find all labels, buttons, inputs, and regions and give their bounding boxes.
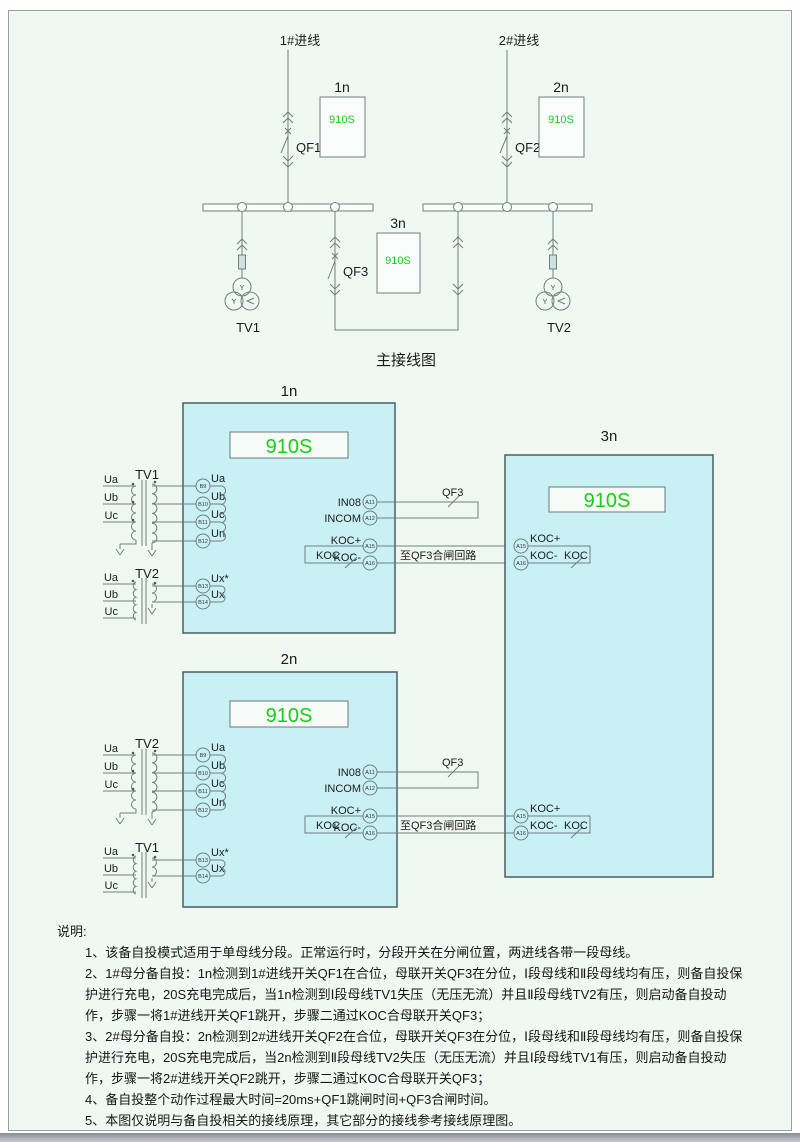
terminal-id: A16: [516, 831, 526, 837]
device-2n-model: 910S: [548, 114, 574, 126]
busbar-node: [331, 203, 340, 212]
terminal-id: B13: [198, 858, 208, 864]
note-item: 4、备自投整个动作过程最大时间=20ms+QF1跳闸时间+QF3合闸时间。: [85, 1089, 751, 1110]
terminal-label: Ux: [211, 863, 225, 875]
polarity-dot: [154, 582, 157, 585]
phase-a-label: Ua: [104, 743, 119, 755]
incom-label: INCOM: [324, 783, 361, 795]
device-3n-detail: 3n 910S A15 A16 KOC+ KOC- KOC A15 A16 KO…: [505, 428, 713, 877]
koc-contact-label: KOC: [564, 820, 588, 832]
breaker-blade-icon: [281, 136, 288, 153]
breaker-qf1-label: QF1: [296, 140, 321, 155]
terminal-id: A15: [516, 814, 526, 820]
terminal-id: B10: [198, 502, 208, 508]
tv-title: TV2: [135, 566, 159, 581]
phase-b-label: Ub: [104, 863, 118, 875]
terminal-label: Uc: [211, 509, 225, 521]
in08-label: IN08: [338, 767, 361, 779]
phase-a-label: Ua: [104, 846, 119, 858]
device-3n-model: 910S: [385, 255, 411, 267]
primary-winding-coil: [132, 486, 137, 540]
device-2n-model-large: 910S: [266, 705, 313, 727]
ground-icon: [116, 813, 124, 824]
wye-symbol: Y: [240, 285, 245, 292]
device-1n-model: 910S: [329, 114, 355, 126]
terminal-id: B9: [200, 484, 207, 490]
terminal-id: A15: [365, 544, 375, 550]
polarity-dot: [154, 750, 157, 753]
to-qf3-closing-circuit-label: 至QF3合闸回路: [400, 548, 476, 562]
polarity-dot: [132, 752, 135, 755]
breaker-blade-icon: [500, 136, 507, 153]
interconnect-1n-3n: 至QF3合闸回路: [377, 546, 514, 563]
primary-winding-coil: [132, 755, 137, 809]
vt-winding-circle: [552, 292, 570, 310]
polarity-dot: [132, 580, 135, 583]
koc-plus-label: KOC+: [530, 803, 560, 815]
terminal-label: Ub: [211, 760, 225, 772]
busbar-node: [549, 203, 558, 212]
polarity-dot: [132, 854, 135, 857]
fuse-icon: [239, 255, 246, 269]
transformer-core: [142, 480, 146, 546]
terminal-id: B14: [198, 600, 208, 606]
terminal-id: A16: [365, 831, 375, 837]
tv-title: TV2: [135, 736, 159, 751]
koc-contact-label: KOC: [316, 820, 340, 832]
phase-c-label: Uc: [105, 779, 119, 791]
ground-icon: [116, 544, 124, 555]
koc-contact-label: KOC: [316, 550, 340, 562]
device-1n-detail: 1n 910S TV1 Ua Ub Uc B9 B10: [103, 383, 478, 633]
screenshot-root: { "colors": { "accent_green": "#17cd17",…: [0, 0, 800, 1142]
terminal-id: B9: [200, 753, 207, 759]
transformer-core: [142, 578, 146, 624]
feeder-2: 2#进线 QF2 2n 910S: [499, 33, 584, 203]
ground-icon: [148, 543, 156, 556]
secondary-winding-coil: [152, 753, 157, 812]
qf3-contact-label: QF3: [442, 757, 463, 769]
open-delta-symbol: [247, 298, 254, 304]
terminal-label: Ux: [211, 589, 225, 601]
terminal-id: A16: [365, 561, 375, 567]
device-1n-label: 1n: [334, 79, 350, 95]
wye-symbol: Y: [551, 285, 556, 292]
terminal-label: Ux*: [211, 573, 229, 585]
bustie-qf3: QF3 3n 910S: [328, 211, 463, 330]
busbar-2: [423, 203, 592, 212]
transformer-core: [142, 749, 146, 815]
koc-plus-label: KOC+: [530, 533, 560, 545]
terminal-label: Ua: [211, 742, 226, 754]
polarity-dot: [132, 483, 135, 486]
device-3n-label: 3n: [390, 215, 406, 231]
secondary-winding-coil: [152, 484, 157, 543]
open-delta-symbol: [558, 298, 565, 304]
vt-winding-circle: [241, 292, 259, 310]
device-2n-detail: 2n 910S TV2 Ua Ub Uc B9 B10: [103, 651, 478, 907]
koc-plus-label: KOC+: [331, 805, 361, 817]
polarity-dot: [154, 856, 157, 859]
device-1n-box: [320, 97, 365, 157]
terminal-id: A15: [516, 544, 526, 550]
polarity-dot: [154, 481, 157, 484]
qf3-contact-label: QF3: [442, 487, 463, 499]
terminal-label: Un: [211, 528, 225, 540]
note-item: 1、该备自投模式适用于单母线分段。正常运行时，分段开关在分闸位置，两进线各带一段…: [85, 942, 751, 963]
terminal-id: B10: [198, 771, 208, 777]
phase-c-label: Uc: [105, 510, 119, 522]
terminal-id: A15: [365, 814, 375, 820]
main-diagram-caption: 主接线图: [376, 352, 436, 369]
incoming-line-1-label: 1#进线: [280, 33, 320, 48]
phase-c-label: Uc: [105, 880, 119, 892]
terminal-label: Ub: [211, 491, 225, 503]
terminal-id: B14: [198, 874, 208, 880]
transformer-core: [142, 852, 146, 898]
device-3n-model-large: 910S: [584, 490, 631, 512]
secondary-winding-coil: [152, 858, 157, 876]
busbar-1: [203, 203, 373, 212]
bottom-edge-bar: [0, 1133, 800, 1142]
incoming-line-2-label: 2#进线: [499, 33, 539, 48]
busbar-node: [284, 203, 293, 212]
tv-title: TV1: [135, 467, 159, 482]
fuse-icon: [550, 255, 557, 269]
note-item: 3、2#母分备自投：2n检测到2#进线开关QF2在合位，母联开关QF3在分位，Ⅰ…: [85, 1026, 751, 1089]
terminal-label: Uc: [211, 778, 225, 790]
wye-symbol: Y: [232, 299, 237, 306]
phase-b-label: Ub: [104, 589, 118, 601]
secondary-winding-coil: [152, 584, 157, 602]
koc-minus-label: KOC-: [530, 820, 558, 832]
busbar-node: [238, 203, 247, 212]
terminal-id: A16: [516, 561, 526, 567]
note-item: 2、1#母分备自投：1n检测到1#进线开关QF1在合位，母联开关QF3在分位，Ⅰ…: [85, 963, 751, 1026]
koc-plus-label: KOC+: [331, 535, 361, 547]
terminal-id: B11: [198, 520, 207, 526]
polarity-dot: [132, 770, 135, 773]
terminal-label: Ua: [211, 473, 226, 485]
phase-b-label: Ub: [104, 761, 118, 773]
terminal-id: A12: [365, 516, 375, 522]
note-item: 5、本图仅说明与备自投相关的接线原理，其它部分的接线参考接线原理图。: [85, 1110, 751, 1131]
terminal-label: Ux*: [211, 847, 229, 859]
phase-a-label: Ua: [104, 572, 119, 584]
device-2n-label: 2n: [553, 79, 569, 95]
busbar-node: [454, 203, 463, 212]
tv1-label: TV1: [236, 320, 260, 335]
tv1-branch: Y Y TV1: [225, 211, 260, 335]
ground-icon: [148, 812, 156, 825]
device-3n-title: 3n: [601, 428, 618, 445]
polarity-dot: [132, 501, 135, 504]
in08-label: IN08: [338, 497, 361, 509]
koc-minus-label: KOC-: [530, 550, 558, 562]
notes-section: 说明: 1、该备自投模式适用于单母线分段。正常运行时，分段开关在分闸位置，两进线…: [57, 921, 751, 1131]
wire: [120, 540, 136, 544]
notes-heading: 说明:: [57, 921, 751, 942]
terminal-id: B13: [198, 584, 208, 590]
terminal-label: Un: [211, 797, 225, 809]
busbar-node: [503, 203, 512, 212]
breaker-blade-icon: [328, 261, 335, 279]
ground-icon: [148, 604, 156, 614]
to-qf3-closing-circuit-label: 至QF3合闸回路: [400, 818, 476, 832]
wye-symbol: Y: [543, 299, 548, 306]
wire: [120, 809, 136, 813]
ground-icon: [148, 878, 156, 888]
phase-c-label: Uc: [105, 606, 119, 618]
tv2-branch: Y Y TV2: [536, 211, 571, 335]
feeder-1: 1#进线 QF1 1n 910S: [280, 33, 365, 203]
device-2n-box: [539, 97, 584, 157]
breaker-qf2-label: QF2: [515, 140, 540, 155]
device-1n-title: 1n: [281, 383, 298, 400]
polarity-dot: [132, 788, 135, 791]
terminal-id: A11: [365, 770, 374, 776]
terminal-id: B11: [198, 789, 207, 795]
device-2n-title: 2n: [281, 651, 298, 668]
terminal-id: B12: [198, 808, 208, 814]
tv-title: TV1: [135, 840, 159, 855]
terminal-id: B12: [198, 539, 208, 545]
polarity-dot: [132, 519, 135, 522]
device-1n-model-large: 910S: [266, 436, 313, 458]
incom-label: INCOM: [324, 513, 361, 525]
phase-b-label: Ub: [104, 492, 118, 504]
notes-list: 1、该备自投模式适用于单母线分段。正常运行时，分段开关在分闸位置，两进线各带一段…: [57, 942, 751, 1131]
terminal-id: A11: [365, 500, 374, 506]
tv2-label: TV2: [547, 320, 571, 335]
terminal-id: A12: [365, 786, 375, 792]
koc-contact-label: KOC: [564, 550, 588, 562]
wiring-diagram: 1#进线 QF1 1n 910S 2#进线 QF2 2n 910S: [0, 0, 800, 925]
phase-a-label: Ua: [104, 474, 119, 486]
breaker-qf3-label: QF3: [343, 264, 368, 279]
